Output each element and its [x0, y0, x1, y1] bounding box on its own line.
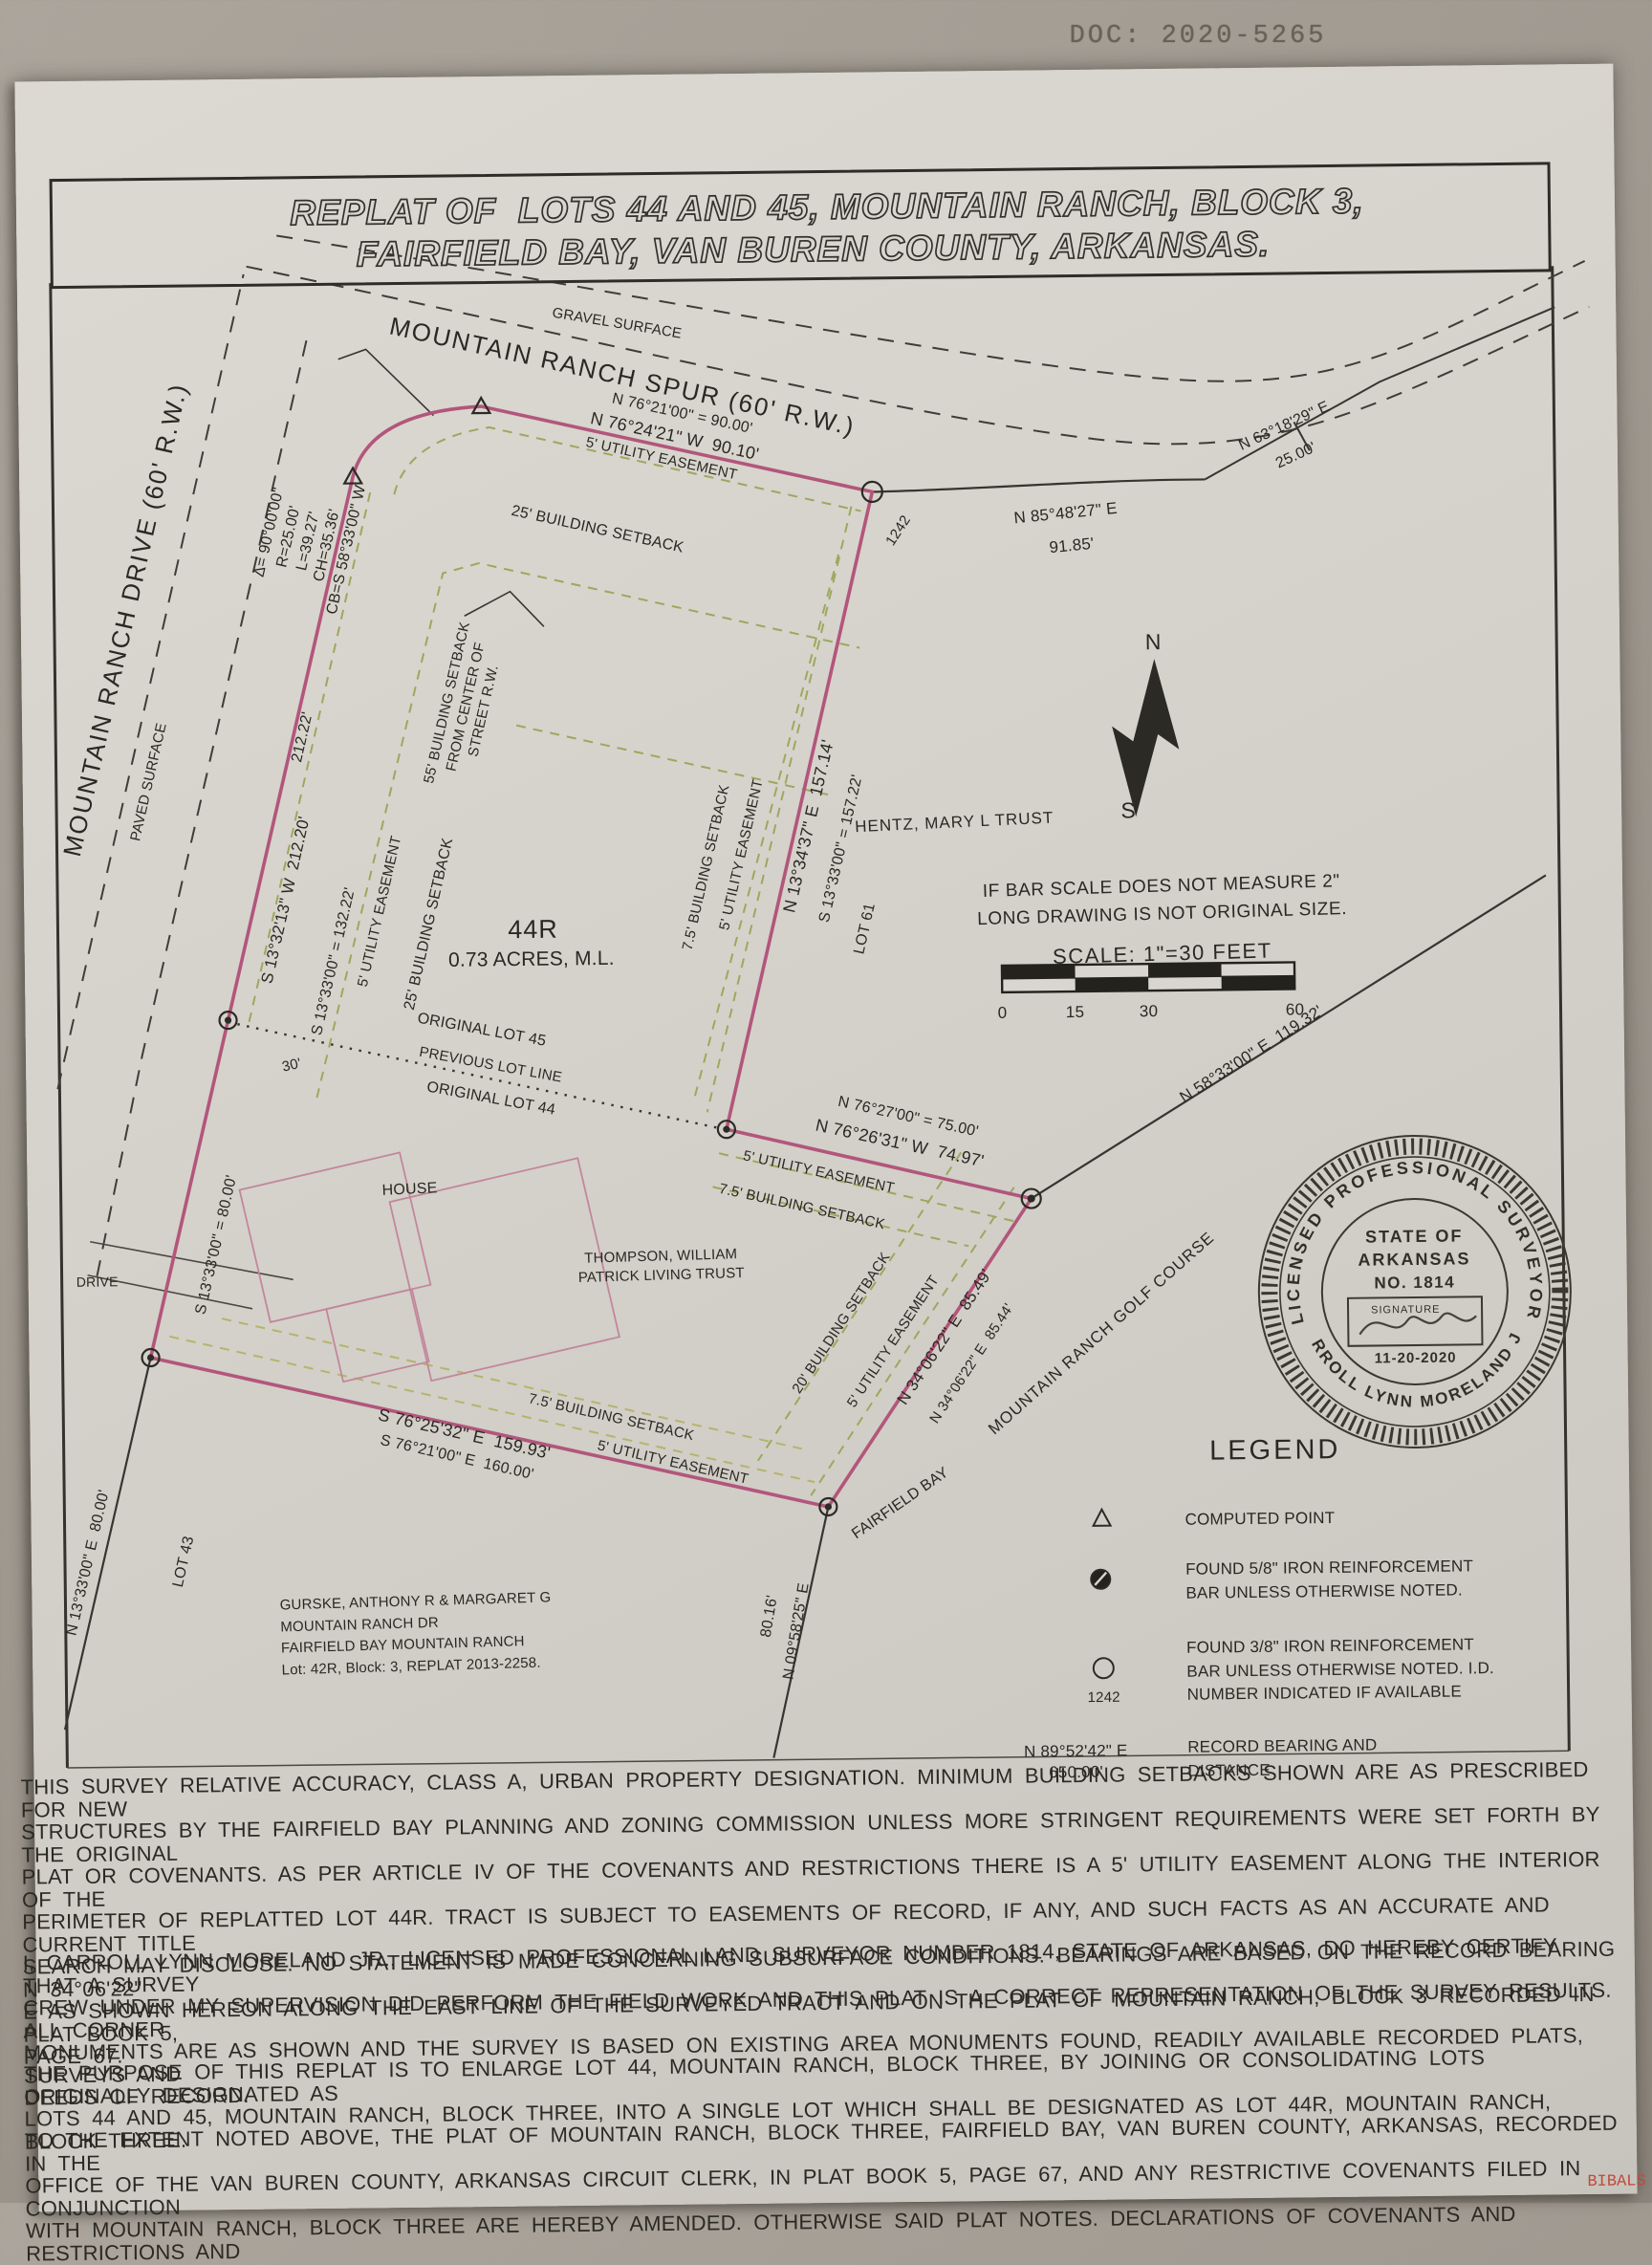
seal-arkansas: ARKANSAS [1358, 1249, 1470, 1269]
north-arrow-n: N [1145, 628, 1162, 657]
legend-found-58: FOUND 5/8" IRON REINFORCEMENT BAR UNLESS… [1185, 1555, 1473, 1605]
label-lot-44r: 44R [508, 913, 558, 947]
seal-number: NO. 1814 [1374, 1274, 1455, 1293]
plat-content: LICENSED PROFESSIONAL SURVEYOR CARROLL L… [0, 0, 1652, 2212]
legend-found-38-id: 1242 [1087, 1688, 1119, 1708]
label-owner-gurske: GURSKE, ANTHONY R & MARGARET G MOUNTAIN … [279, 1587, 553, 1681]
corner-stamp: BIBALS MG [1587, 2172, 1652, 2191]
plat-title-line2: FAIRFIELD BAY, VAN BUREN COUNTY, ARKANSA… [357, 222, 1271, 278]
seal-state-of: STATE OF [1365, 1226, 1464, 1246]
seal-signature-label: SIGNATURE [1371, 1304, 1440, 1317]
label-owner-thompson: THOMPSON, WILLIAM PATRICK LIVING TRUST [577, 1245, 745, 1287]
scale-tick-0: 0 [998, 1003, 1008, 1024]
signature-scribble [1359, 1313, 1476, 1334]
legend-found-38: FOUND 3/8" IRON REINFORCEMENT BAR UNLESS… [1186, 1633, 1494, 1708]
notes-paragraph-4: TO THE EXTENT NOTED ABOVE, THE PLAT OF M… [25, 2112, 1622, 2265]
scale-tick-30: 30 [1140, 1001, 1159, 1022]
legend-title: LEGEND [1209, 1432, 1341, 1470]
seal-date: 11-20-2020 [1375, 1350, 1457, 1367]
label-house: HOUSE [381, 1179, 438, 1201]
label-lot-area: 0.73 ACRES, M.L. [448, 946, 615, 973]
label-driveway: DRIVE [76, 1273, 119, 1291]
legend-computed-point: COMPUTED POINT [1185, 1507, 1335, 1532]
scale-tick-60: 60 [1286, 999, 1305, 1020]
scale-tick-15: 15 [1066, 1002, 1085, 1023]
north-arrow-s: S [1120, 796, 1136, 825]
label-distance-ne: 91.85' [1049, 534, 1096, 559]
title-block: REPLAT OF LOTS 44 AND 45, MOUNTAIN RANCH… [50, 162, 1552, 289]
bar-scale-warning: IF BAR SCALE DOES NOT MEASURE 2" LONG DR… [976, 867, 1348, 934]
